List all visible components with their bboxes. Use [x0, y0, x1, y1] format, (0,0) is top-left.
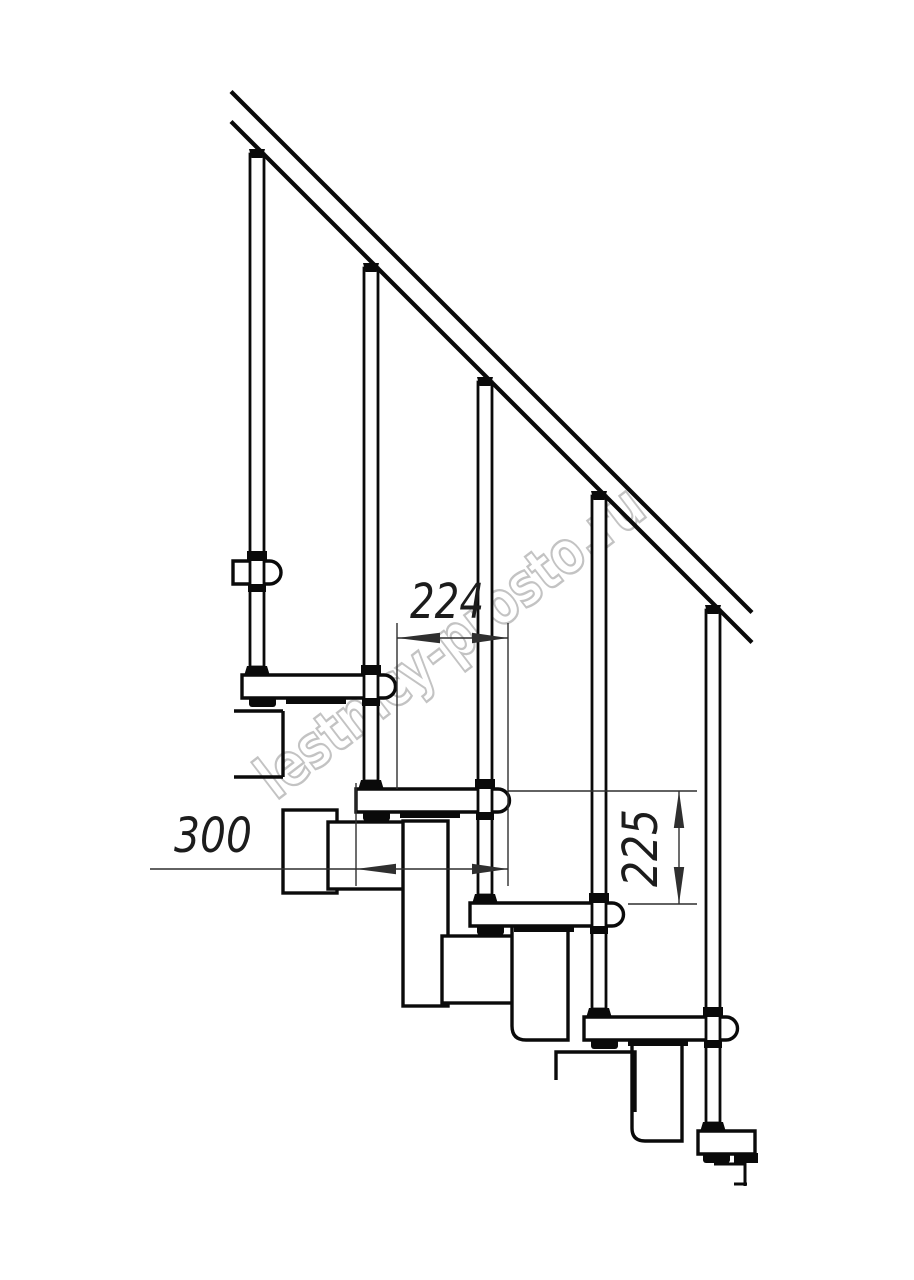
baluster-foot-icon [244, 666, 270, 676]
module-under-tread-2 [328, 822, 405, 889]
module-under-tread-3 [442, 936, 518, 1003]
dimension-label-riser-height: 225 [613, 809, 669, 887]
clip-icon [734, 1153, 758, 1163]
staircase-drawing-page: lestnicy-prosto.ru [0, 0, 914, 1280]
baluster-collar-icon [247, 551, 267, 561]
module-tube-4 [632, 1039, 682, 1141]
baluster-foot-icon [586, 1008, 612, 1018]
clip-icon [477, 925, 504, 935]
dimension-label-tread-depth: 300 [174, 808, 252, 864]
clip-strip-icon [628, 1040, 688, 1046]
baluster-collar-icon [248, 584, 266, 592]
clip-icon [249, 697, 276, 707]
clip-strip-icon [286, 698, 346, 704]
module-tube-3 [512, 925, 568, 1040]
clip-icon [591, 1039, 618, 1049]
baluster-collar-icon [362, 698, 380, 706]
baluster-collar-icon [704, 1040, 722, 1048]
baluster-collar-icon [475, 779, 495, 789]
dimension-label-step-run: 224 [410, 574, 484, 630]
clip-strip-icon [400, 812, 460, 818]
baluster-foot-icon [472, 894, 498, 904]
modular-staircase-side-view: lestnicy-prosto.ru [0, 0, 914, 1280]
baluster-collar-icon [589, 893, 609, 903]
baluster-foot-icon [700, 1122, 726, 1132]
baluster-collar-icon [361, 665, 381, 675]
baluster-collar-icon [476, 812, 494, 820]
tread-5-cut [698, 1131, 755, 1154]
clip-strip-icon [514, 926, 574, 932]
baluster-foot-icon [358, 780, 384, 790]
baluster-collar-icon [590, 926, 608, 934]
baluster-collar-icon [703, 1007, 723, 1017]
clip-icon [363, 811, 390, 821]
clip-icon [703, 1153, 730, 1163]
